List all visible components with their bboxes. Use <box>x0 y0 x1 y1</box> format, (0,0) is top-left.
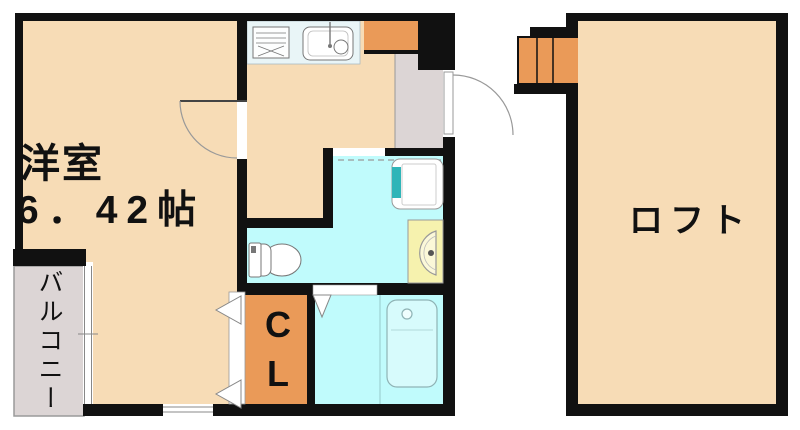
loft-label: ロフト <box>608 193 773 242</box>
floor-plan: 洋室 6．42帖 バルコニー CL ロフト <box>0 0 800 430</box>
entry-door <box>443 70 513 137</box>
kitchen-sink-icon <box>303 22 353 60</box>
wash-basin-icon <box>408 220 443 283</box>
utility-block <box>364 21 418 54</box>
south-window <box>163 404 213 416</box>
western-room-size-label: 6．42帖 <box>17 179 205 235</box>
closet-label: CL <box>256 301 300 398</box>
balcony-label: バルコニー <box>31 269 67 419</box>
washing-machine-icon <box>392 159 443 209</box>
bathtub-icon <box>387 300 437 387</box>
loft-entry-opening <box>566 38 578 83</box>
stove-icon <box>253 27 289 58</box>
toilet-icon <box>249 243 301 277</box>
